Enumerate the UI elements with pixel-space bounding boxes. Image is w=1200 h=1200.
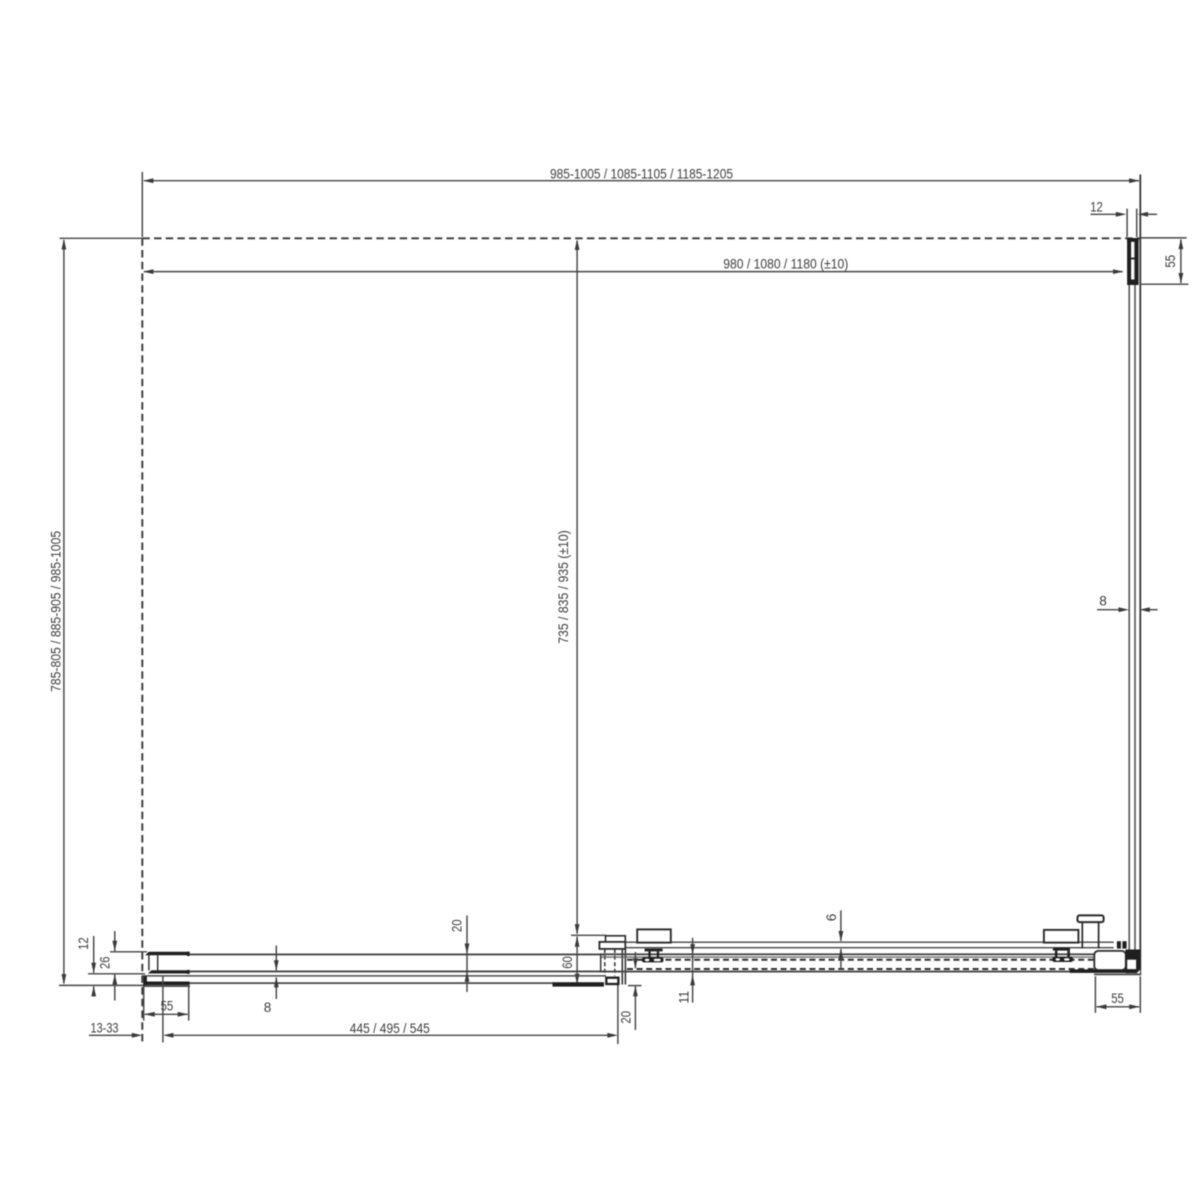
svg-text:8: 8	[1099, 594, 1107, 609]
svg-text:12: 12	[1090, 200, 1103, 215]
svg-text:985-1005 / 1085-1105 / 1185-12: 985-1005 / 1085-1105 / 1185-1205	[550, 166, 733, 181]
svg-text:445 / 495 / 545: 445 / 495 / 545	[350, 1021, 430, 1036]
svg-text:20: 20	[619, 1011, 634, 1024]
svg-text:26: 26	[97, 956, 112, 969]
svg-text:785-805 / 885-905 / 985-1005: 785-805 / 885-905 / 985-1005	[48, 531, 63, 692]
svg-text:735 / 835 / 935 (±10): 735 / 835 / 935 (±10)	[556, 530, 571, 644]
svg-text:980 / 1080 / 1180 (±10): 980 / 1080 / 1180 (±10)	[723, 256, 848, 271]
svg-text:13-33: 13-33	[91, 1021, 119, 1036]
svg-text:60: 60	[560, 956, 575, 969]
svg-text:20: 20	[450, 919, 465, 932]
svg-text:12: 12	[76, 937, 91, 950]
svg-text:55: 55	[1111, 991, 1124, 1006]
svg-text:55: 55	[1163, 255, 1178, 268]
svg-text:8: 8	[264, 1000, 272, 1015]
svg-text:6: 6	[824, 914, 839, 922]
svg-text:55: 55	[161, 999, 174, 1014]
svg-text:11: 11	[677, 991, 692, 1004]
